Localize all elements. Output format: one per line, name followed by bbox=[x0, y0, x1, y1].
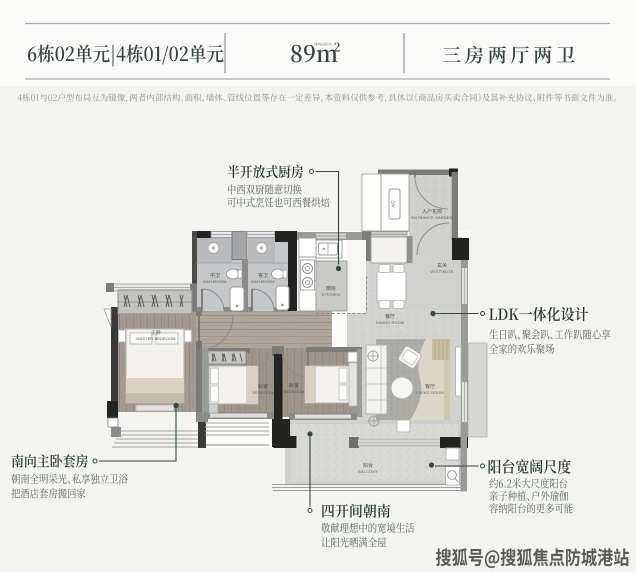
svg-text:ENTRANCE GARDEN: ENTRANCE GARDEN bbox=[411, 216, 452, 220]
svg-text:DINING ROOM: DINING ROOM bbox=[376, 321, 404, 325]
svg-text:BATHROOM: BATHROOM bbox=[251, 280, 274, 284]
svg-text:BALCONY: BALCONY bbox=[358, 470, 378, 474]
svg-text:VESTIBUTE: VESTIBUTE bbox=[431, 270, 454, 274]
svg-text:MASTER BEDROOM: MASTER BEDROOM bbox=[136, 337, 175, 341]
svg-text:LIVING ROOM: LIVING ROOM bbox=[416, 391, 444, 395]
svg-text:BEDROOM: BEDROOM bbox=[283, 390, 304, 394]
svg-text:BEDROOM: BEDROOM bbox=[252, 391, 273, 395]
svg-text:A/C: A/C bbox=[391, 201, 396, 208]
svg-text:KITCHEN: KITCHEN bbox=[322, 293, 340, 297]
svg-text:BATHROOM: BATHROOM bbox=[203, 280, 226, 284]
